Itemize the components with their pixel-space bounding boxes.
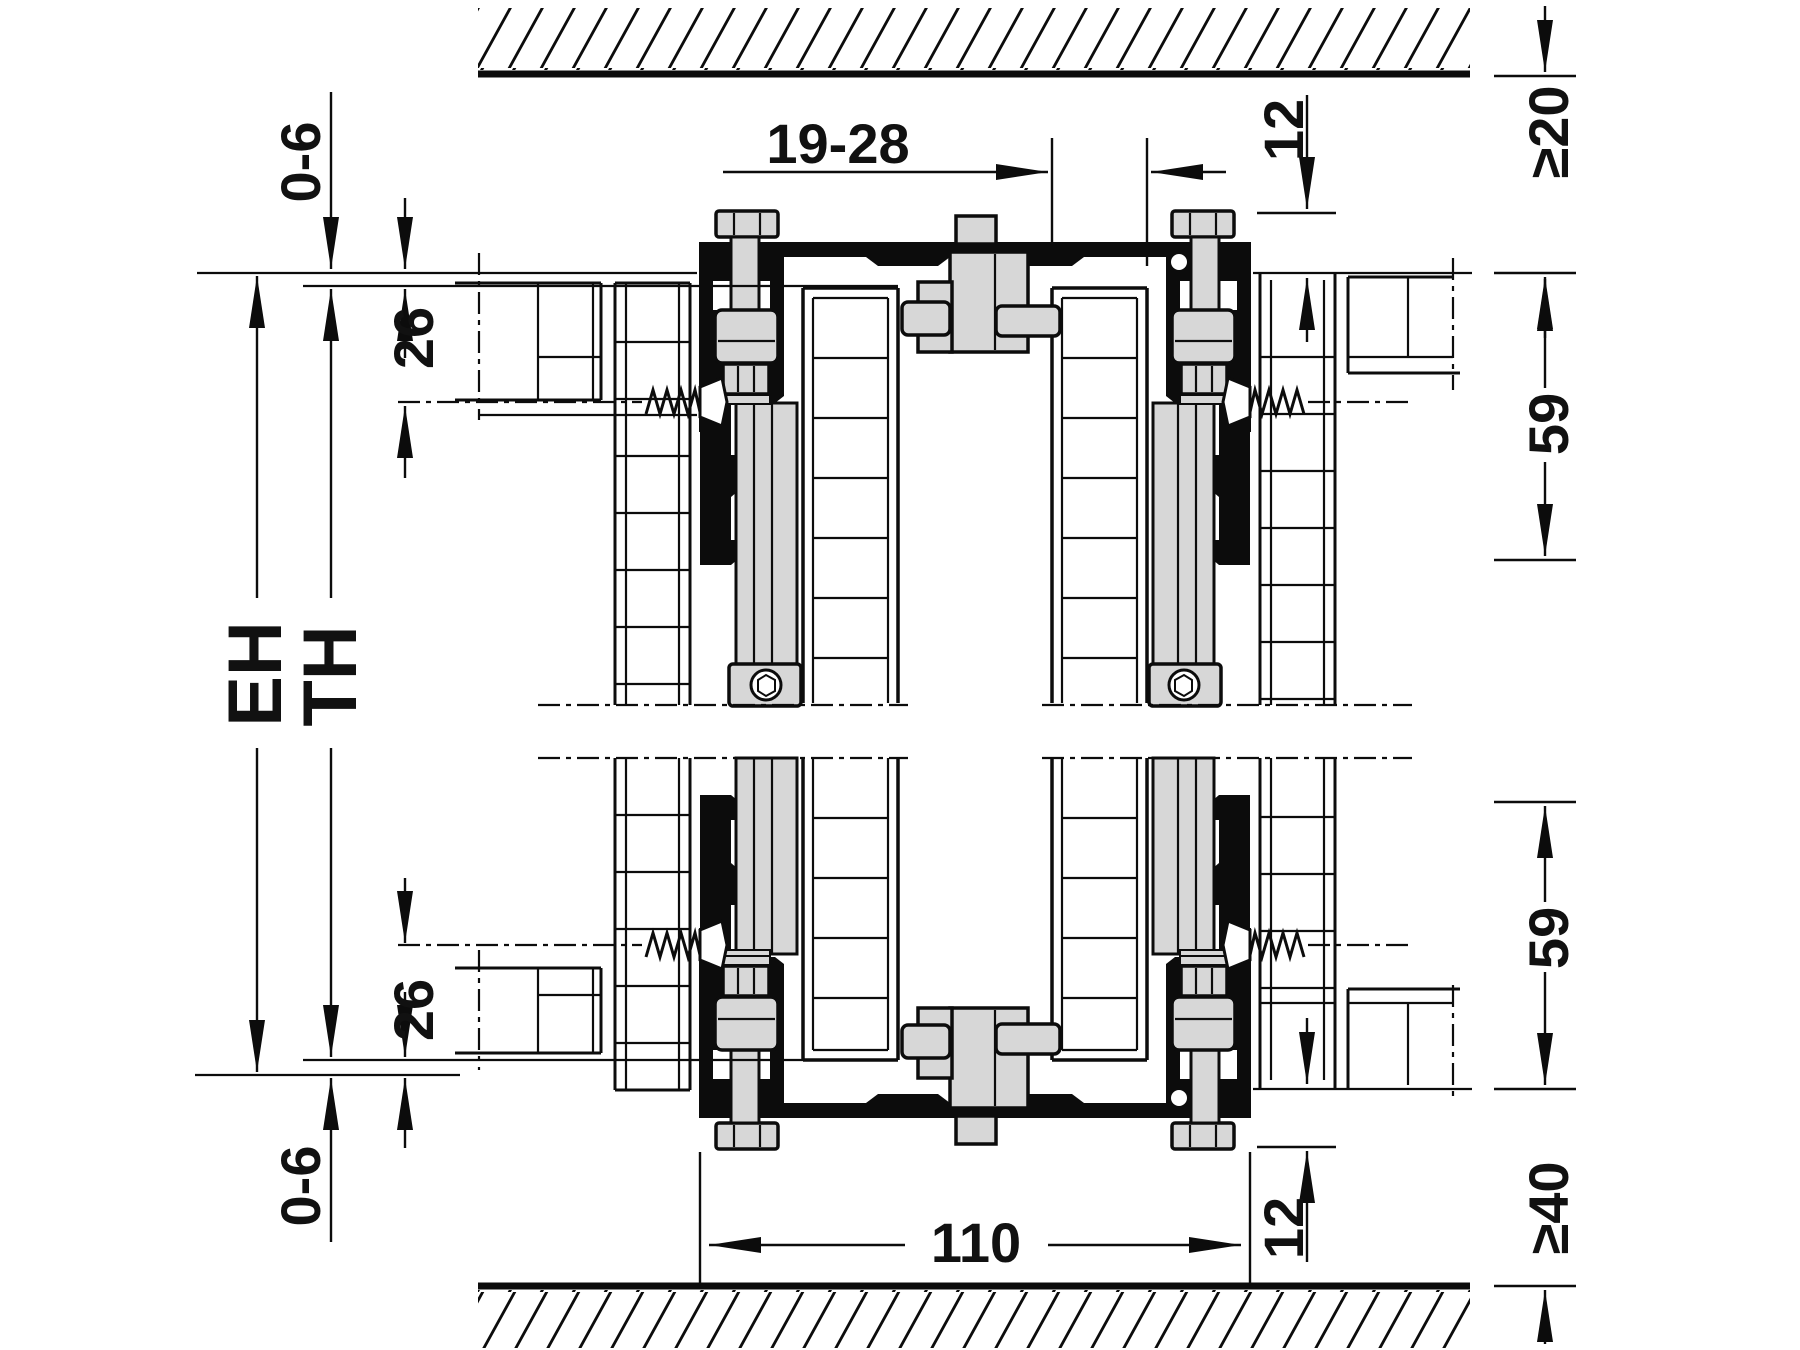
left-wall-column bbox=[615, 283, 690, 1090]
section-break-lines bbox=[538, 705, 1412, 758]
dim-label-bottom-inset: 12 bbox=[1252, 1197, 1315, 1259]
dimension-lines-right bbox=[1257, 6, 1576, 1344]
cabinet-bottom-left-panel bbox=[455, 950, 601, 1070]
cabinet-top-left-panel bbox=[455, 253, 697, 420]
dim-label-upper-fitting-space: 59 bbox=[1517, 393, 1580, 455]
dim-label-bottom-gap: 0-6 bbox=[269, 1146, 332, 1227]
ceiling-section bbox=[478, 8, 1470, 74]
technical-drawing-page: 0-6 26 EH TH 19-28 12 ≥20 59 59 12 ≥40 1… bbox=[0, 0, 1800, 1350]
dim-label-top-gap: 0-6 bbox=[269, 122, 332, 203]
dim-label-top-inset: 12 bbox=[1252, 99, 1315, 161]
top-right-fixing-screw bbox=[1223, 378, 1304, 426]
dim-label-floor-clearance: ≥40 bbox=[1517, 1161, 1580, 1254]
dim-label-top-reveal: 26 bbox=[382, 307, 445, 369]
floor-hatch bbox=[478, 1290, 1470, 1348]
dim-label-lower-fitting-space: 59 bbox=[1517, 907, 1580, 969]
cabinet-bottom-right-panel bbox=[1348, 985, 1460, 1100]
cabinet-top-right-panel bbox=[1348, 258, 1460, 390]
dim-label-installation-height: EH bbox=[213, 621, 298, 727]
top-left-fixing-screw bbox=[646, 378, 727, 426]
bottom-track-assembly bbox=[699, 928, 1251, 1149]
top-track-assembly bbox=[699, 211, 1251, 432]
floor-section bbox=[478, 1286, 1470, 1348]
dim-label-door-thickness: 19-28 bbox=[766, 112, 909, 175]
ceiling-hatch bbox=[478, 8, 1470, 70]
fitting-cross-section-drawing: 0-6 26 EH TH 19-28 12 ≥20 59 59 12 ≥40 1… bbox=[0, 0, 1800, 1350]
dim-label-bottom-reveal: 26 bbox=[382, 979, 445, 1041]
dim-label-track-width: 110 bbox=[931, 1211, 1021, 1274]
dim-label-door-height: TH bbox=[288, 625, 373, 726]
bottom-right-fixing-screw bbox=[1223, 921, 1304, 969]
dim-label-ceiling-clearance: ≥20 bbox=[1517, 85, 1580, 178]
